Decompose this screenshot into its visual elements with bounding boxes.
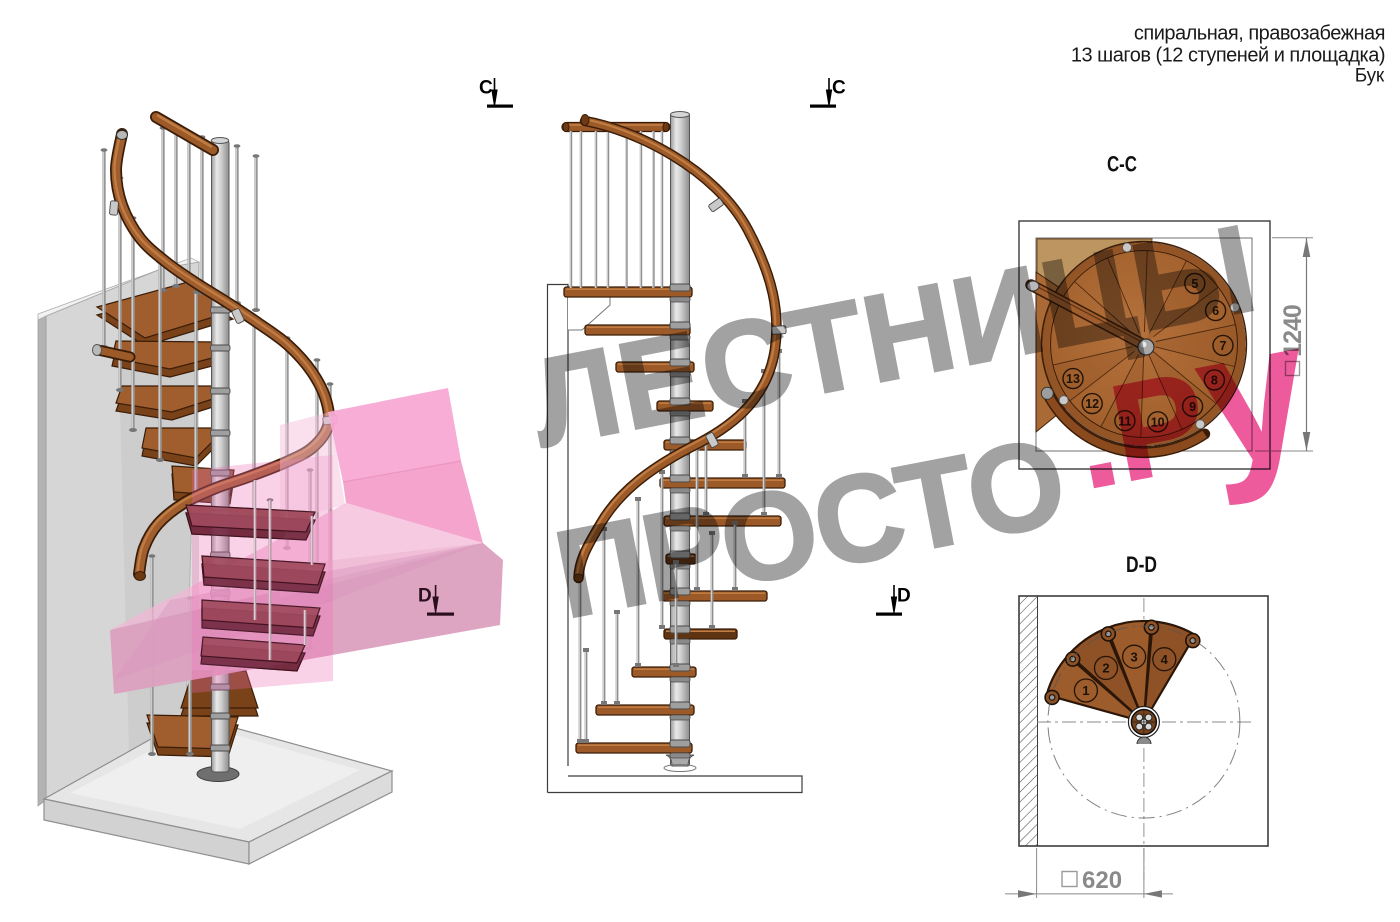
svg-text:D-D: D-D — [1126, 552, 1157, 577]
svg-text:D: D — [897, 586, 911, 607]
svg-text:Бук: Бук — [1355, 66, 1385, 87]
svg-text:C: C — [479, 78, 493, 99]
svg-text:3: 3 — [1130, 649, 1137, 664]
svg-text:спиральная, правозабежная: спиральная, правозабежная — [1134, 23, 1385, 45]
svg-text:2: 2 — [1102, 661, 1109, 676]
svg-text:620: 620 — [1082, 867, 1122, 894]
svg-text:C-C: C-C — [1107, 152, 1137, 177]
svg-text:4: 4 — [1161, 652, 1169, 667]
svg-text:C: C — [832, 78, 846, 99]
svg-text:13 шагов (12 ступеней и площад: 13 шагов (12 ступеней и площадка) — [1071, 45, 1385, 67]
svg-text:D: D — [418, 586, 432, 607]
svg-text:1: 1 — [1082, 683, 1089, 698]
